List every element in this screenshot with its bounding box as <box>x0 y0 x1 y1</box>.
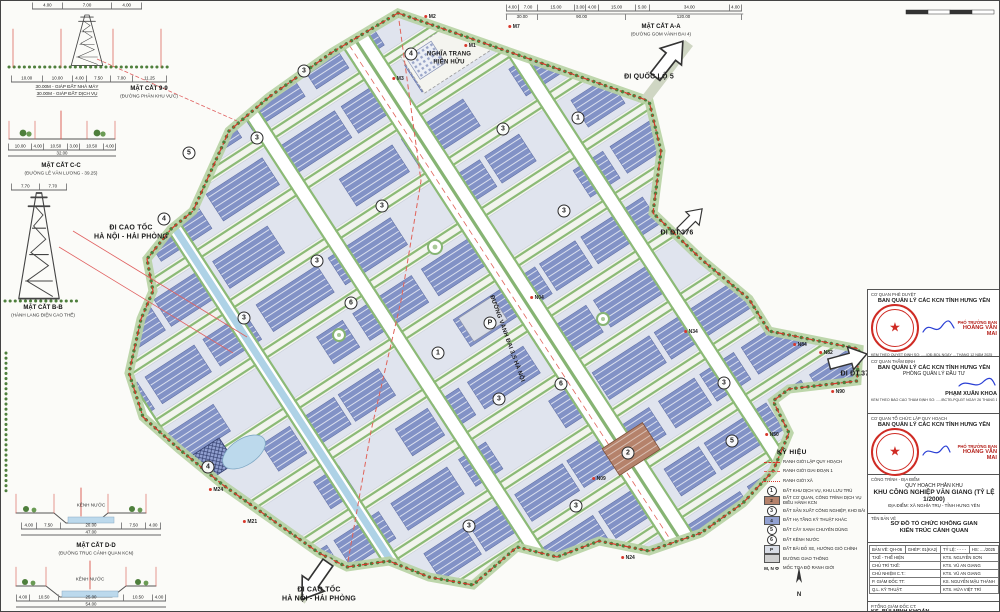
legend-item: 4ĐẤT HẠ TẦNG KỸ THUẬT KHÁC <box>763 517 869 525</box>
landuse-badge: 3 <box>298 65 311 78</box>
legend-symbol: 4 <box>763 517 780 525</box>
legend-symbol <box>763 477 780 485</box>
legend-symbol: 3 <box>763 507 780 515</box>
info-cell: Q.L. KỸ THUẬT: <box>870 586 941 594</box>
legend-symbol: 6 <box>763 536 780 544</box>
landuse-badge: 4 <box>405 48 418 61</box>
info-cell: KTS. VŨ AN GIANG <box>941 570 999 578</box>
info-cell: T.KẾ - THỂ HIỆN <box>870 554 941 562</box>
legend-symbol: 2 <box>763 497 780 505</box>
review-note: KÈM THEO BÁO CÁO THẨM ĐỊNH SỐ: ...../BCT… <box>871 398 997 402</box>
legend-item: 2ĐẤT CƠ QUAN, CÔNG TRÌNH DỊCH VỤ ĐIỀU HÀ… <box>763 496 869 505</box>
landuse-badge: 1 <box>432 347 445 360</box>
info-cell: P. GIÁM ĐỐC TT: <box>870 578 941 586</box>
road-label: NGHĨA TRANG HIỆN HỮU <box>427 52 471 67</box>
landuse-badge: 3 <box>463 520 476 533</box>
legend-label: RANH GIỚI XÃ <box>783 479 813 484</box>
legend-symbol: 5 <box>763 526 780 534</box>
boundary-marker: M24 <box>209 487 223 493</box>
org3-header: CƠ QUAN TỔ CHỨC LẬP QUY HOẠCH <box>871 416 997 421</box>
legend-label: ĐẤT SẢN XUẤT CÔNG NGHIỆP, KHO BÃI <box>783 509 865 514</box>
red-seal <box>871 304 919 352</box>
info-cell: KS. NGUYỄN MẬU THÀNH <box>941 578 999 586</box>
legend-label: ĐƯỜNG GIAO THÔNG <box>783 557 828 562</box>
legend-label: RANH GIỚI LẬP QUY HOẠCH <box>783 460 842 465</box>
landuse-badge: 5 <box>726 435 739 448</box>
signature-scribble <box>957 377 997 391</box>
legend-label: RANH GIỚI GIAI ĐOẠN 1 <box>783 469 833 474</box>
landuse-badge: 3 <box>570 500 583 513</box>
signer-name: PHẠM XUÂN KHOA <box>871 391 997 397</box>
drawing-title: SƠ ĐỒ TỔ CHỨC KHÔNG GIAN KIẾN TRÚC CẢNH … <box>871 521 997 535</box>
legend-item: 5ĐẤT CÂY XANH CHUYÊN DÙNG <box>763 526 869 534</box>
landuse-badge: 6 <box>555 378 568 391</box>
boundary-marker: N34 <box>684 329 698 335</box>
signer-name: HOÀNG VĂN MAI <box>957 325 997 337</box>
legend-item: RANH GIỚI LẬP QUY HOẠCH <box>763 458 869 466</box>
legend-label: ĐẤT BÃI ĐỖ XE, HƯỚNG GIÓ CHÍNH <box>783 547 857 552</box>
legend-label: ĐẤT CÂY XANH CHUYÊN DÙNG <box>783 528 848 533</box>
boundary-marker: M3 <box>392 76 403 82</box>
info-cell: KTS. VŨ AN GIANG <box>941 562 999 570</box>
legend-symbol: M, N Φ <box>763 565 780 573</box>
legend-symbol <box>763 555 780 563</box>
boundary-marker: N09 <box>592 476 606 482</box>
legend-item: PĐẤT BÃI ĐỖ XE, HƯỚNG GIÓ CHÍNH <box>763 545 869 553</box>
signature-scribble <box>921 443 951 461</box>
north-arrow-icon: N <box>787 567 811 598</box>
info-cell: BẢN VẼ: QH-06 <box>870 546 906 554</box>
legend-symbol: P <box>763 545 780 553</box>
project-name: KHU CÔNG NGHIỆP VĂN GIANG (TỶ LỆ 1/2000) <box>871 489 997 503</box>
red-seal <box>871 428 919 476</box>
legend-label: ĐẤT KÊNH NƯỚC <box>783 538 819 543</box>
legend: KÝ HIỆU RANH GIỚI LẬP QUY HOẠCHRANH GIỚI… <box>763 449 869 574</box>
landuse-badge: 3 <box>238 312 251 325</box>
info-cell: GHÉP: 01(KA2) <box>905 546 940 554</box>
road-label: ĐI QUỐC LỘ 5 <box>624 74 674 83</box>
signer-role: PHÓ TRƯỞNG BAN <box>957 320 997 325</box>
landuse-badge: 1 <box>572 112 585 125</box>
approve-org: BAN QUẢN LÝ CÁC KCN TỈNH HƯNG YÊN <box>871 298 997 304</box>
legend-symbol: 1 <box>763 487 780 495</box>
road-label: ĐI CAO TỐC HÀ NỘI - HẢI PHÒNG <box>94 224 168 242</box>
legend-item: RANH GIỚI GIAI ĐOẠN 1 <box>763 468 869 476</box>
info-cell: CHỦ NHIỆM C.T.: <box>870 570 941 578</box>
landuse-badge: 2 <box>622 447 635 460</box>
info-cell: TỶ LỆ: - - - - <box>941 546 970 554</box>
landuse-badge: 3 <box>251 132 264 145</box>
drawing-canvas: ĐI QUỐC LỘ 5NGHĨA TRANG HIỆN HỮUĐI ĐT.37… <box>0 0 1000 612</box>
boundary-marker: N24 <box>621 555 635 561</box>
legend-label: ĐẤT HẠ TẦNG KỸ THUẬT KHÁC <box>783 518 847 523</box>
legend-header: KÝ HIỆU <box>777 449 869 456</box>
review-header: CƠ QUAN THẨM ĐỊNH <box>871 359 997 364</box>
legend-symbol <box>763 458 780 466</box>
landuse-badge: 3 <box>376 200 389 213</box>
landuse-badge: 3 <box>558 205 571 218</box>
legend-item: 1ĐẤT KHU DỊCH VỤ, KHU LƯU TRÚ <box>763 487 869 495</box>
road-label: ĐƯỜNG VÀNH ĐAI 3,5 HÀ NỘI <box>487 295 525 384</box>
info-cell: KTS. HỨA VIỆT TRÌ <box>941 586 999 594</box>
legend-symbol <box>763 468 780 476</box>
boundary-marker: N82 <box>819 350 833 356</box>
legend-item: 6ĐẤT KÊNH NƯỚC <box>763 536 869 544</box>
legend-label: ĐẤT KHU DỊCH VỤ, KHU LƯU TRÚ <box>783 489 852 494</box>
boundary-marker: N50 <box>765 432 779 438</box>
boundary-marker: N84 <box>793 342 807 348</box>
boundary-marker: N90 <box>831 389 845 395</box>
landuse-badge: 4 <box>202 461 215 474</box>
boundary-marker: N04 <box>530 295 544 301</box>
legend-item: RANH GIỚI XÃ <box>763 477 869 485</box>
landuse-badge: 3 <box>493 393 506 406</box>
landuse-badge: 6 <box>345 297 358 310</box>
info-cell: CHỦ TRÌ T.KẾ: <box>870 562 941 570</box>
boundary-marker: M21 <box>243 519 257 525</box>
info-cell: HS: ..../2025 <box>969 546 998 554</box>
legend-label: ĐẤT CƠ QUAN, CÔNG TRÌNH DỊCH VỤ ĐIỀU HÀN… <box>783 496 869 505</box>
landuse-badge: 4 <box>158 213 171 226</box>
boundary-marker: M7 <box>508 24 519 30</box>
road-label: ĐI ĐT.376 <box>661 230 694 239</box>
project-location: ĐỊA ĐIỂM: XÃ NGHĨA TRỤ - TỈNH HƯNG YÊN <box>871 503 997 508</box>
info-cell: KTS. NGUYỄN SƠN <box>941 554 999 562</box>
landuse-badge: P <box>484 317 497 330</box>
drawing-info-table: BẢN VẼ: QH-06GHÉP: 01(KA2)TỶ LỆ: - - - -… <box>869 545 999 594</box>
landuse-badge: 3 <box>497 123 510 136</box>
landuse-badge: 3 <box>311 255 324 268</box>
approve-header: CƠ QUAN PHÊ DUYỆT <box>871 292 997 297</box>
boundary-marker: M1 <box>464 43 475 49</box>
legend-item: M, N ΦMỐC TỌA ĐỘ RANH GIỚI <box>763 565 869 573</box>
legend-item: ĐƯỜNG GIAO THÔNG <box>763 555 869 563</box>
signature-scribble <box>921 318 955 338</box>
landuse-badge: 3 <box>718 377 731 390</box>
landuse-badge: 5 <box>183 147 196 160</box>
project-header: CÔNG TRÌNH - ĐỊA ĐIỂM <box>871 477 997 482</box>
road-label: ĐI CAO TỐC HÀ NỘI - HẢI PHÒNG <box>282 586 356 604</box>
boundary-marker: M2 <box>424 14 435 20</box>
legend-item: 3ĐẤT SẢN XUẤT CÔNG NGHIỆP, KHO BÃI <box>763 507 869 515</box>
title-block: CƠ QUAN PHÊ DUYỆT BAN QUẢN LÝ CÁC KCN TỈ… <box>867 289 1000 612</box>
